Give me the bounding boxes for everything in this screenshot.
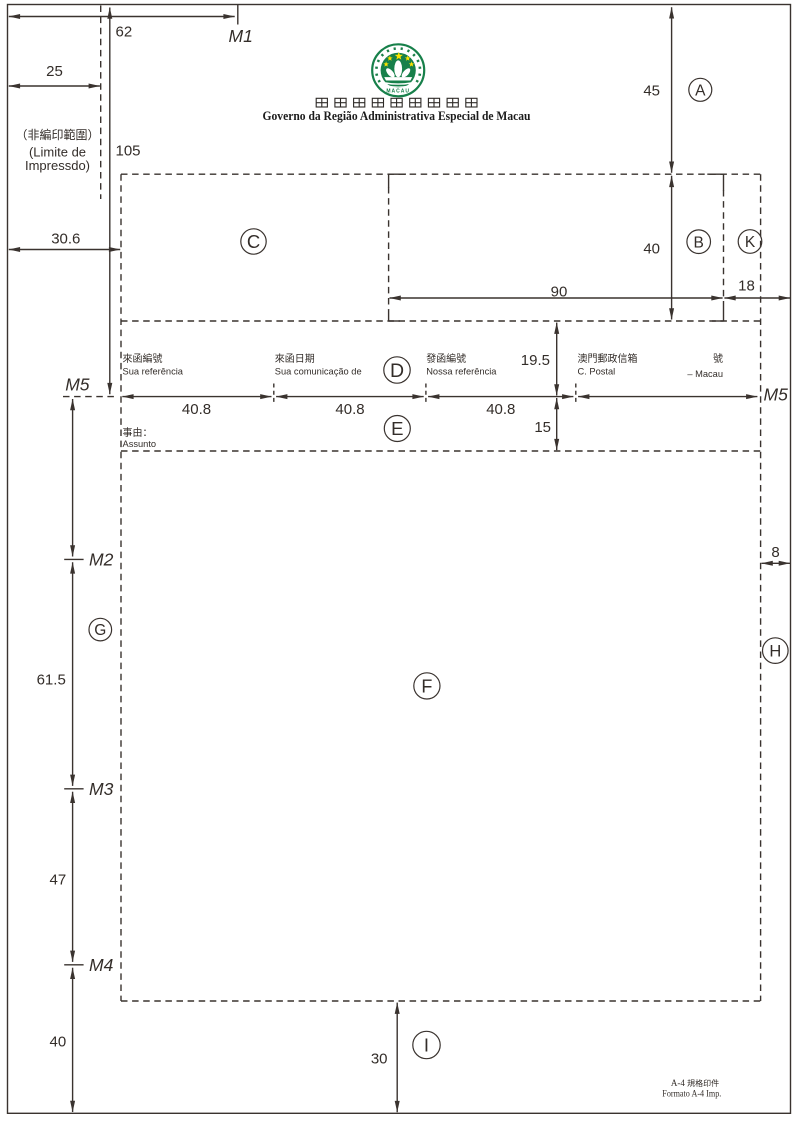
svg-text:Sua comunicação de: Sua comunicação de (275, 367, 362, 377)
svg-text:澳門郵政信箱: 澳門郵政信箱 (578, 352, 638, 365)
svg-text:15: 15 (534, 419, 551, 436)
svg-text:事由：: 事由： (123, 426, 153, 439)
svg-text:Sua referência: Sua referência (123, 367, 184, 377)
svg-text:F: F (421, 676, 432, 696)
svg-text:Assunto: Assunto (123, 439, 157, 449)
svg-text:Formato A-4 Imp.: Formato A-4 Imp. (662, 1088, 721, 1098)
svg-text:30.6: 30.6 (51, 231, 80, 248)
svg-text:E: E (391, 418, 403, 439)
svg-text:105: 105 (116, 143, 141, 160)
svg-text:K: K (745, 234, 756, 251)
svg-text:(Limite de: (Limite de (29, 144, 86, 159)
svg-text:18: 18 (738, 277, 755, 294)
svg-text:Governo da Região Administrati: Governo da Região Administrativa Especia… (263, 108, 531, 123)
svg-text:B: B (694, 234, 704, 251)
svg-text:Nossa referência: Nossa referência (426, 367, 497, 377)
svg-text:40: 40 (50, 1034, 67, 1051)
svg-text:M4: M4 (89, 955, 114, 975)
svg-text:47: 47 (50, 872, 67, 889)
svg-text:H: H (769, 643, 781, 661)
svg-text:G: G (94, 622, 106, 639)
svg-text:來函日期: 來函日期 (275, 353, 315, 365)
svg-text:M5: M5 (764, 385, 789, 405)
svg-text:40.8: 40.8 (182, 401, 211, 418)
svg-text:30: 30 (371, 1051, 388, 1068)
svg-text:90: 90 (551, 284, 568, 301)
svg-text:40.8: 40.8 (486, 401, 515, 418)
svg-text:MACAU: MACAU (386, 89, 410, 95)
svg-text:62: 62 (116, 24, 133, 41)
svg-text:A: A (695, 82, 706, 99)
svg-text:Impressdo): Impressdo) (25, 158, 90, 173)
svg-text:C: C (247, 231, 260, 252)
svg-text:40.8: 40.8 (335, 401, 364, 418)
svg-text:來函編號: 來函編號 (123, 352, 163, 365)
svg-text:發函編號: 發函編號 (426, 352, 466, 365)
svg-text:40: 40 (643, 241, 660, 258)
svg-text:號: 號 (713, 352, 723, 365)
svg-text:8: 8 (771, 544, 779, 561)
svg-text:25: 25 (46, 63, 63, 80)
svg-text:61.5: 61.5 (37, 672, 66, 689)
svg-text:M2: M2 (89, 550, 114, 570)
svg-text:M3: M3 (89, 779, 114, 799)
svg-text:A-4 規格印件: A-4 規格印件 (671, 1078, 719, 1088)
svg-text:M1: M1 (229, 26, 253, 46)
svg-text:45: 45 (643, 83, 660, 100)
svg-text:C. Postal: C. Postal (578, 367, 616, 377)
svg-text:（非編印範圍）: （非編印範圍） (15, 127, 99, 142)
svg-text:M5: M5 (65, 374, 90, 394)
svg-text:– Macau: – Macau (687, 369, 723, 379)
svg-text:I: I (424, 1035, 429, 1056)
svg-text:D: D (390, 360, 404, 382)
svg-text:19.5: 19.5 (521, 352, 550, 369)
